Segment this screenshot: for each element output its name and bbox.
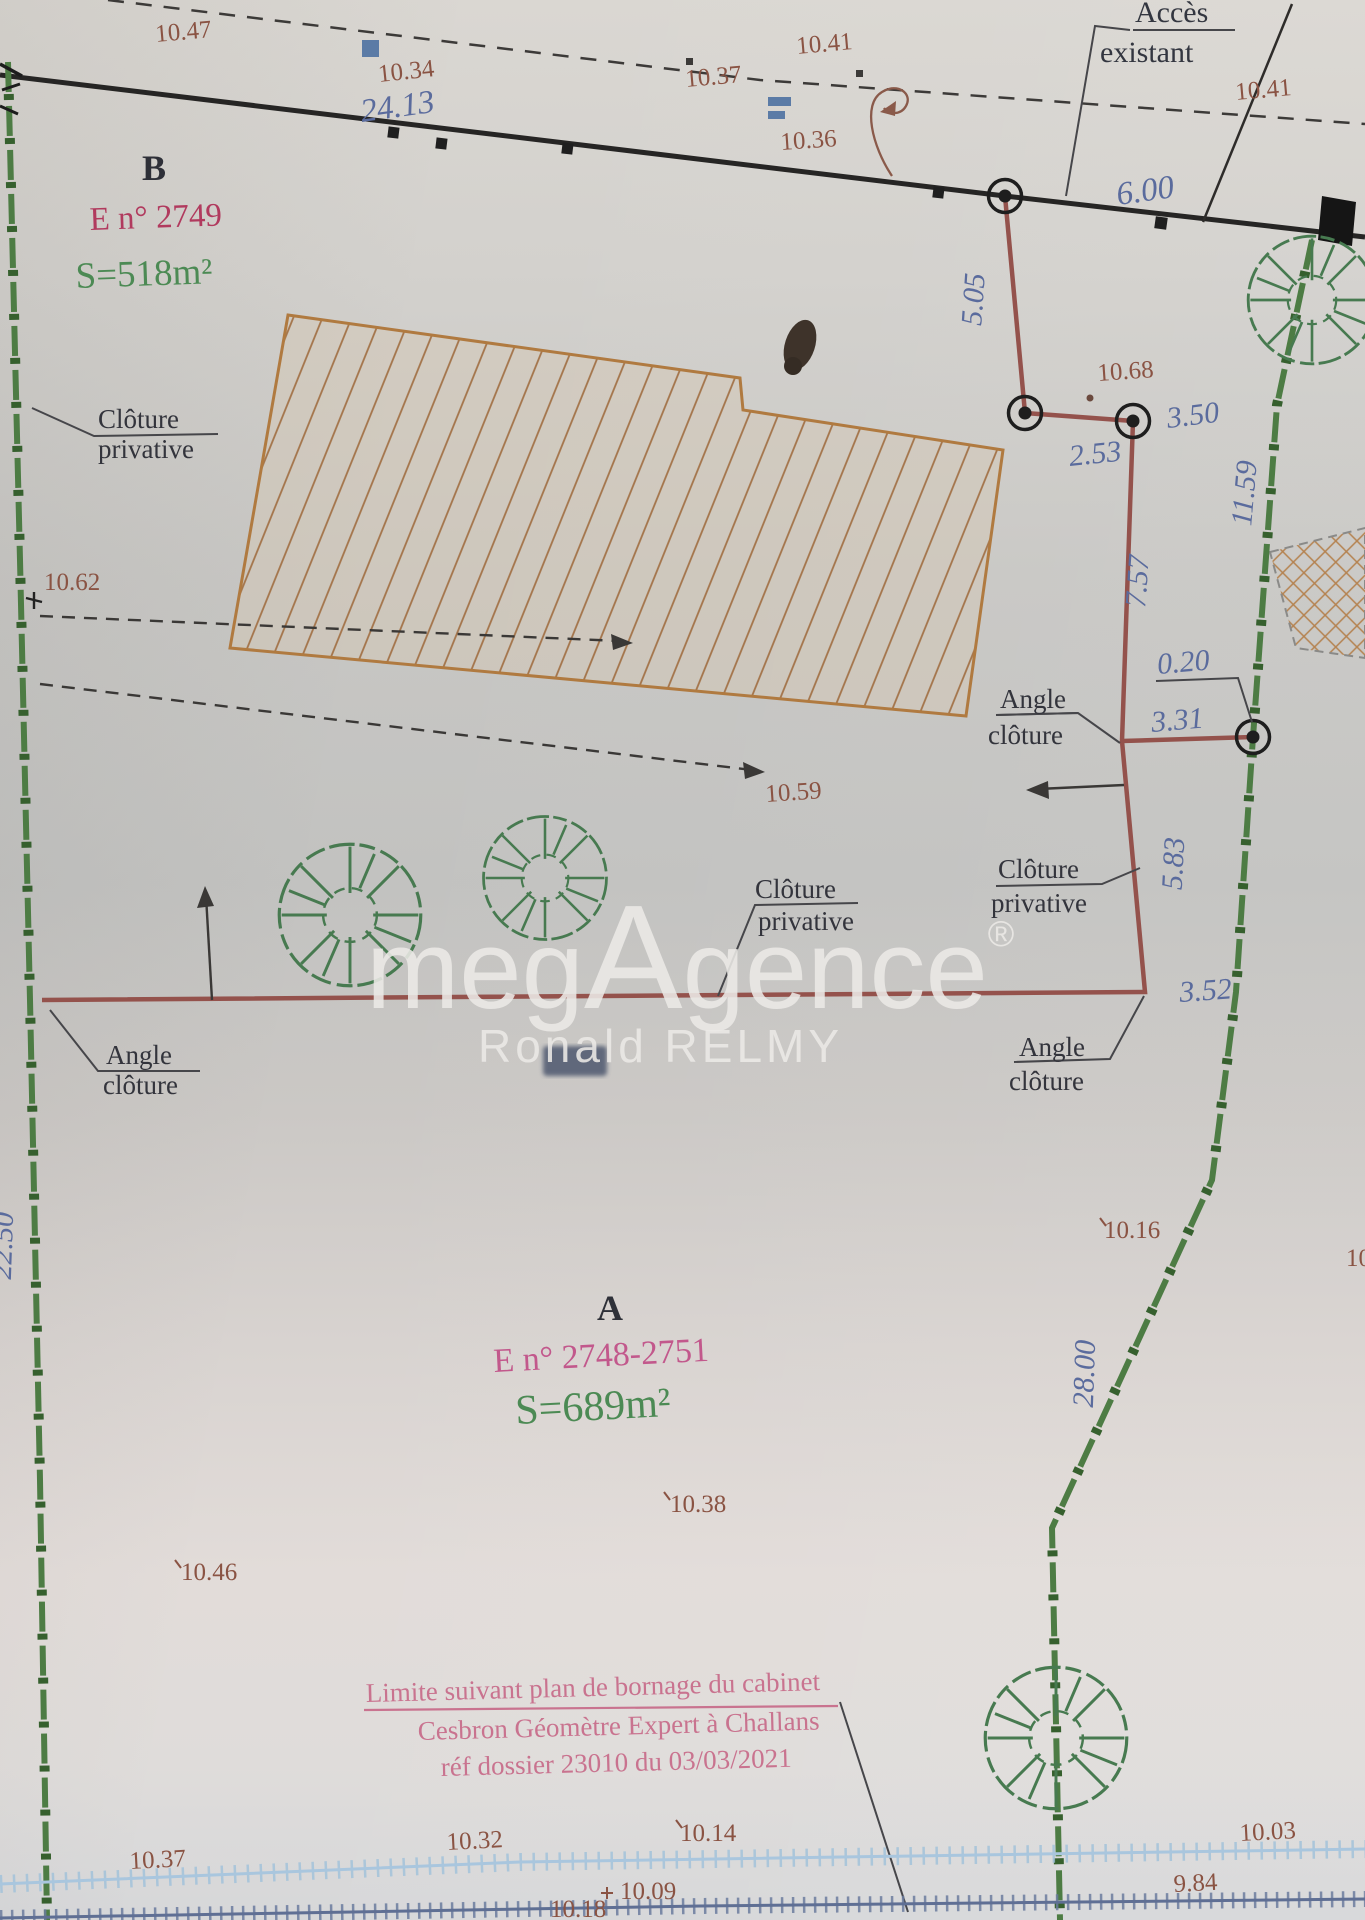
access-label-line2: existant [1100, 36, 1194, 69]
svg-text:clôture: clôture [1009, 1066, 1084, 1096]
elevation-label: 10.46 [181, 1559, 237, 1586]
dimension-label: 3.52 [1177, 972, 1233, 1009]
parcel-b-area: S=518m² [75, 251, 213, 297]
svg-text:Cesbron Géomètre Expert à Chal: Cesbron Géomètre Expert à Challans [417, 1705, 820, 1746]
boundary-right [1052, 240, 1312, 1920]
parcel-a-area: S=689m² [514, 1380, 672, 1434]
point-mark [1087, 395, 1094, 402]
elevation-label: 10.41 [795, 28, 853, 60]
elevation-label: 10 [1346, 1245, 1365, 1272]
svg-text:Clôture: Clôture [998, 854, 1079, 884]
left-arrow [1026, 781, 1124, 799]
elevation-label: 10.32 [446, 1826, 504, 1856]
elevation-label: 10.03 [1239, 1817, 1297, 1847]
dimension-label: 22.50 [0, 1211, 20, 1280]
elevation-label: 10.34 [377, 55, 436, 88]
parcel-b-lot: E n° 2749 [89, 197, 223, 238]
up-arrow [197, 886, 214, 1000]
path-band-blue [0, 1849, 1365, 1884]
cloture-privative-left-label: Clôture privative [98, 404, 194, 464]
building-footprint [230, 315, 1003, 716]
dimension-label: 28.00 [1067, 1339, 1102, 1408]
angle-cloture-bottom-left-label: Angle clôture [103, 1040, 178, 1100]
dimension-label: 0.20 [1156, 644, 1211, 681]
elevation-label: 10.41 [1234, 74, 1292, 106]
svg-text:Angle: Angle [1000, 684, 1066, 714]
dimension-label: 5.05 [955, 272, 992, 327]
angle-cloture-bottom-right-label: Angle clôture [1009, 1032, 1085, 1096]
elevation-label: 10.14 [680, 1820, 737, 1847]
elevation-label: 10.18 [550, 1896, 606, 1920]
elevation-label: 10.09 [620, 1878, 676, 1905]
scan-dirt-spot [778, 316, 823, 375]
elevation-label: 10.68 [1097, 356, 1155, 387]
adjacent-structure [1270, 528, 1365, 658]
elevation-label: 10.59 [765, 777, 823, 808]
elevation-label: 10.36 [780, 125, 838, 156]
elevation-label: 10.62 [44, 569, 100, 596]
parcel-b-letter: B [142, 148, 166, 188]
watermark-agent: Ronald RELMY [478, 1020, 843, 1072]
access-label-line1: Accès [1135, 0, 1208, 29]
blue-square-mark [362, 40, 379, 57]
watermark-brand: meg [366, 907, 584, 1032]
dimension-label: 3.50 [1164, 396, 1221, 435]
bench-mark-icon [768, 97, 791, 119]
elevation-label: 9.84 [1173, 1869, 1219, 1898]
boundary-markers [989, 180, 1270, 754]
boundary-left [0, 62, 47, 1920]
parcel-a-lot: E n° 2748-2751 [492, 1332, 709, 1380]
dimension-label: 24.13 [358, 84, 437, 130]
svg-text:privative: privative [98, 434, 194, 464]
elevation-label: 10.37 [684, 61, 742, 93]
dimension-label: 6.00 [1114, 169, 1177, 213]
svg-text:Limite suivant plan de bornage: Limite suivant plan de bornage du cabine… [365, 1666, 820, 1708]
svg-text:Clôture: Clôture [98, 404, 179, 434]
svg-text:Clôture: Clôture [755, 874, 836, 904]
survey-plan-drawing: 10.47 10.34 24.13 10.37 10.41 10.36 10.4… [0, 0, 1365, 1920]
dimension-label: 5.83 [1156, 836, 1192, 890]
elevation-label: 10.37 [129, 1845, 187, 1875]
right-corner-marks [1203, 4, 1356, 246]
dimension-label: 3.31 [1149, 702, 1205, 740]
svg-text:Angle: Angle [1019, 1032, 1085, 1062]
svg-text:clôture: clôture [103, 1070, 178, 1100]
elevation-label: 10.38 [670, 1491, 726, 1518]
svg-text:Angle: Angle [106, 1040, 172, 1070]
angle-cloture-mid-label: Angle clôture [988, 684, 1066, 750]
parcel-a-letter: A [597, 1288, 623, 1328]
dimension-label: 2.53 [1067, 435, 1123, 473]
svg-text:megAgence®: megAgence® [366, 875, 1014, 1040]
bornage-note: Limite suivant plan de bornage du cabine… [365, 1666, 820, 1782]
elevation-label: 10.16 [1104, 1217, 1160, 1244]
dimension-label: 11.59 [1225, 459, 1264, 527]
svg-text:clôture: clôture [988, 720, 1063, 750]
dimension-label: 7.57 [1119, 552, 1156, 609]
watermark: megAgence® Ronald RELMY [366, 875, 1014, 1076]
loop-arrow-icon [871, 88, 908, 176]
svg-text:réf dossier 23010 du 03/03/202: réf dossier 23010 du 03/03/2021 [440, 1743, 792, 1782]
survey-plan-scan: 10.47 10.34 24.13 10.37 10.41 10.36 10.4… [0, 0, 1365, 1920]
path-band-bottom [0, 1899, 1365, 1918]
elevation-label: 10.47 [154, 16, 212, 48]
registered-icon: ® [988, 913, 1015, 954]
